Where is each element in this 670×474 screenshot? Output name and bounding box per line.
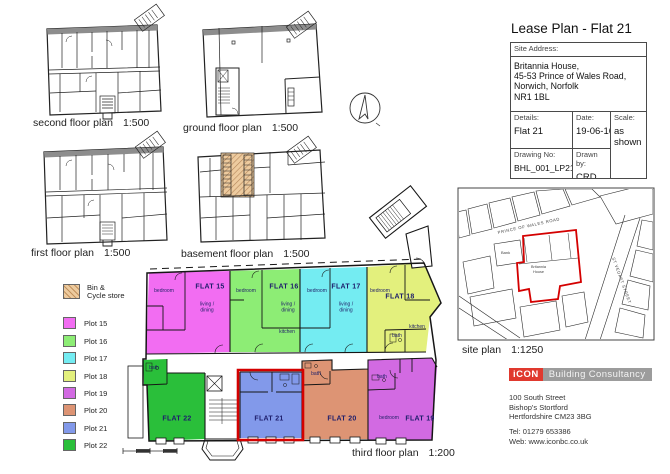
plot-label: Plot 19 [84,389,107,398]
flat-name-label: FLAT 16 [269,284,298,291]
flat-21-area [240,372,302,438]
details-cell: Details: Flat 21 [511,111,572,148]
caption-text: third floor plan [352,447,419,459]
plot-swatch [63,404,76,416]
legend-item: Plot 16 [63,335,107,347]
caption-ground-floor: ground floor plan1:500 [183,122,298,134]
scale-value: as shown [614,126,643,148]
plot-label: Plot 20 [84,406,107,415]
legend-item: Plot 22 [63,439,107,451]
room-label: kitchen [409,325,425,331]
caption-basement: basement floor plan1:500 [181,248,310,260]
company-logo: iCON Building Consultancy [509,368,652,381]
basement-stair-tower [286,136,316,163]
sheet-title: Lease Plan - Flat 21 [511,21,632,36]
plot-swatch [63,317,76,329]
room-label: bedroom [370,289,390,295]
site-address-cell: Britannia House, 45-53 Prince of Wales R… [511,56,646,111]
north-arrow-icon [350,93,380,126]
details-value: Flat 21 [514,126,569,137]
bin-label: Bin & Cycle store [87,284,125,299]
tower-link-corridor [406,226,432,268]
caption-site-plan: site plan1:1250 [462,344,543,356]
company-contact: Tel: 01279 653386 Web: www.iconbc.co.uk [509,427,588,446]
date-value: 19-06-16 [576,126,607,137]
plot-swatch [63,352,76,364]
basement-plan-drawing [198,136,325,242]
plot-swatch [63,370,76,382]
company-address: 100 South Street Bishop's Stortford Hert… [509,393,592,422]
building-label-line2: House [533,270,544,274]
caption-text: site plan [462,344,501,356]
flat-17-area [300,267,367,352]
legend-item: Plot 19 [63,387,107,399]
plot-swatch [63,335,76,347]
room-label: bedroom [236,289,256,295]
flat-name-label: FLAT 19 [405,416,434,423]
plot-label: Plot 22 [84,441,107,450]
bin-swatch [63,284,80,299]
caption-text: basement floor plan [181,248,273,260]
legend-item: Plot 15 [63,317,107,329]
room-label: bath [311,372,321,378]
room-label: bath [149,366,159,372]
room-label: bedroom [154,289,174,295]
room-label: living / dining [339,302,353,313]
drawing-no-cell: Drawing No: BHL_001_LP21 [511,148,572,178]
logo-icon: iCON [509,368,543,381]
caption-text: first floor plan [31,247,94,259]
plot-label: Plot 17 [84,354,107,363]
flat-name-label: FLAT 17 [331,284,360,291]
site-address-header: Site Address: [511,43,646,56]
caption-third-floor: third floor plan1:200 [352,447,455,459]
room-label: bath [392,334,402,340]
room-label: bedroom [307,289,327,295]
flat-name-label: FLAT 20 [327,416,356,423]
bank-label: Bank [501,250,510,255]
first-floor-plan-drawing [44,131,167,246]
plot-label: Plot 15 [84,319,107,328]
second-floor-plan-drawing [47,4,164,119]
date-cell: Date: 19-06-16 [572,111,610,148]
caption-scale: 1:500 [123,117,149,129]
ground-floor-plan-drawing [203,11,322,117]
room-label: living / dining [281,302,295,313]
caption-second-floor: second floor plan1:500 [33,117,149,129]
room-label: bedroom [379,416,399,422]
flat-20-bath-area [302,360,332,371]
stair-bay [202,439,243,460]
logo-wordmark: Building Consultancy [543,368,653,381]
scale-cell: Scale: as shown [610,111,646,178]
room-label: living / dining [200,302,214,313]
caption-scale: 1:500 [283,248,309,260]
legend-item: Plot 21 [63,422,107,434]
legend-item: Plot 17 [63,352,107,364]
legend-item: Plot 18 [63,370,107,382]
room-label: bath [377,375,387,381]
drawing-no-value: BHL_001_LP21 [514,163,569,173]
plot-swatch [63,422,76,434]
caption-text: second floor plan [33,117,113,129]
plot-label: Plot 18 [84,372,107,381]
caption-text: ground floor plan [183,122,262,134]
room-label: kitchen [279,330,295,336]
caption-scale: 1:500 [272,122,298,134]
plot-label: Plot 16 [84,337,107,346]
plot-swatch [63,439,76,451]
flat-19-area [368,358,437,440]
flat-name-label: FLAT 22 [162,416,191,423]
drawn-by-value: CRD [576,172,607,178]
caption-first-floor: first floor plan1:500 [31,247,130,259]
caption-scale: 1:1250 [511,344,543,356]
plot-swatch [63,387,76,399]
stair-core-area [205,373,240,439]
caption-scale: 1:200 [429,447,455,459]
building-label-line1: Britannia [531,265,547,269]
drawing-sheet: PRINCE OF WALES ROAD Britannia House Ban… [0,0,670,474]
drawn-by-cell: Drawn by: CRD [572,148,610,178]
scale-bar [123,448,177,454]
caption-scale: 1:500 [104,247,130,259]
title-block-table: Site Address: Britannia House, 45-53 Pri… [510,42,647,179]
flat-name-label: FLAT 15 [195,284,224,291]
flat-20-area [302,369,368,439]
legend-bin-cycle: Bin & Cycle store [63,284,125,299]
plot-label: Plot 21 [84,424,107,433]
legend-item: Plot 20 [63,404,107,416]
flat-name-label: FLAT 21 [254,416,283,423]
site-address-value: Britannia House, 45-53 Prince of Wales R… [514,61,643,102]
